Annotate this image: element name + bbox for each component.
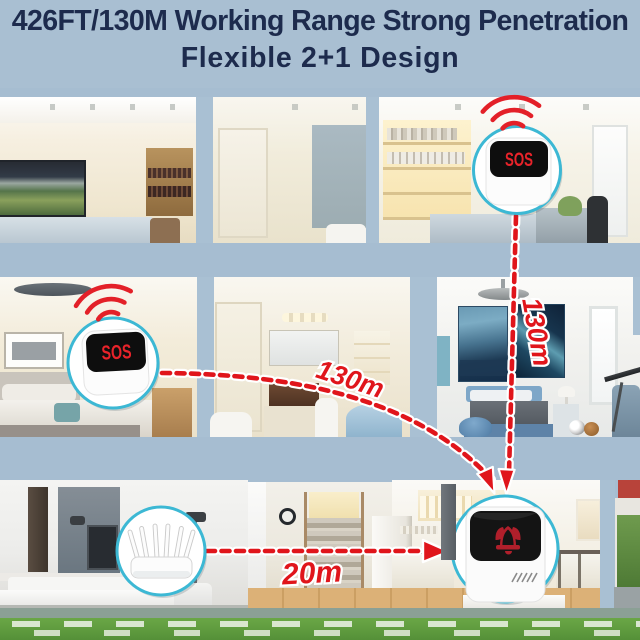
svg-text:SOS: SOS [101,341,132,365]
svg-text:20m: 20m [280,555,343,591]
svg-text:SOS: SOS [505,150,533,171]
svg-text:130m: 130m [516,295,558,368]
